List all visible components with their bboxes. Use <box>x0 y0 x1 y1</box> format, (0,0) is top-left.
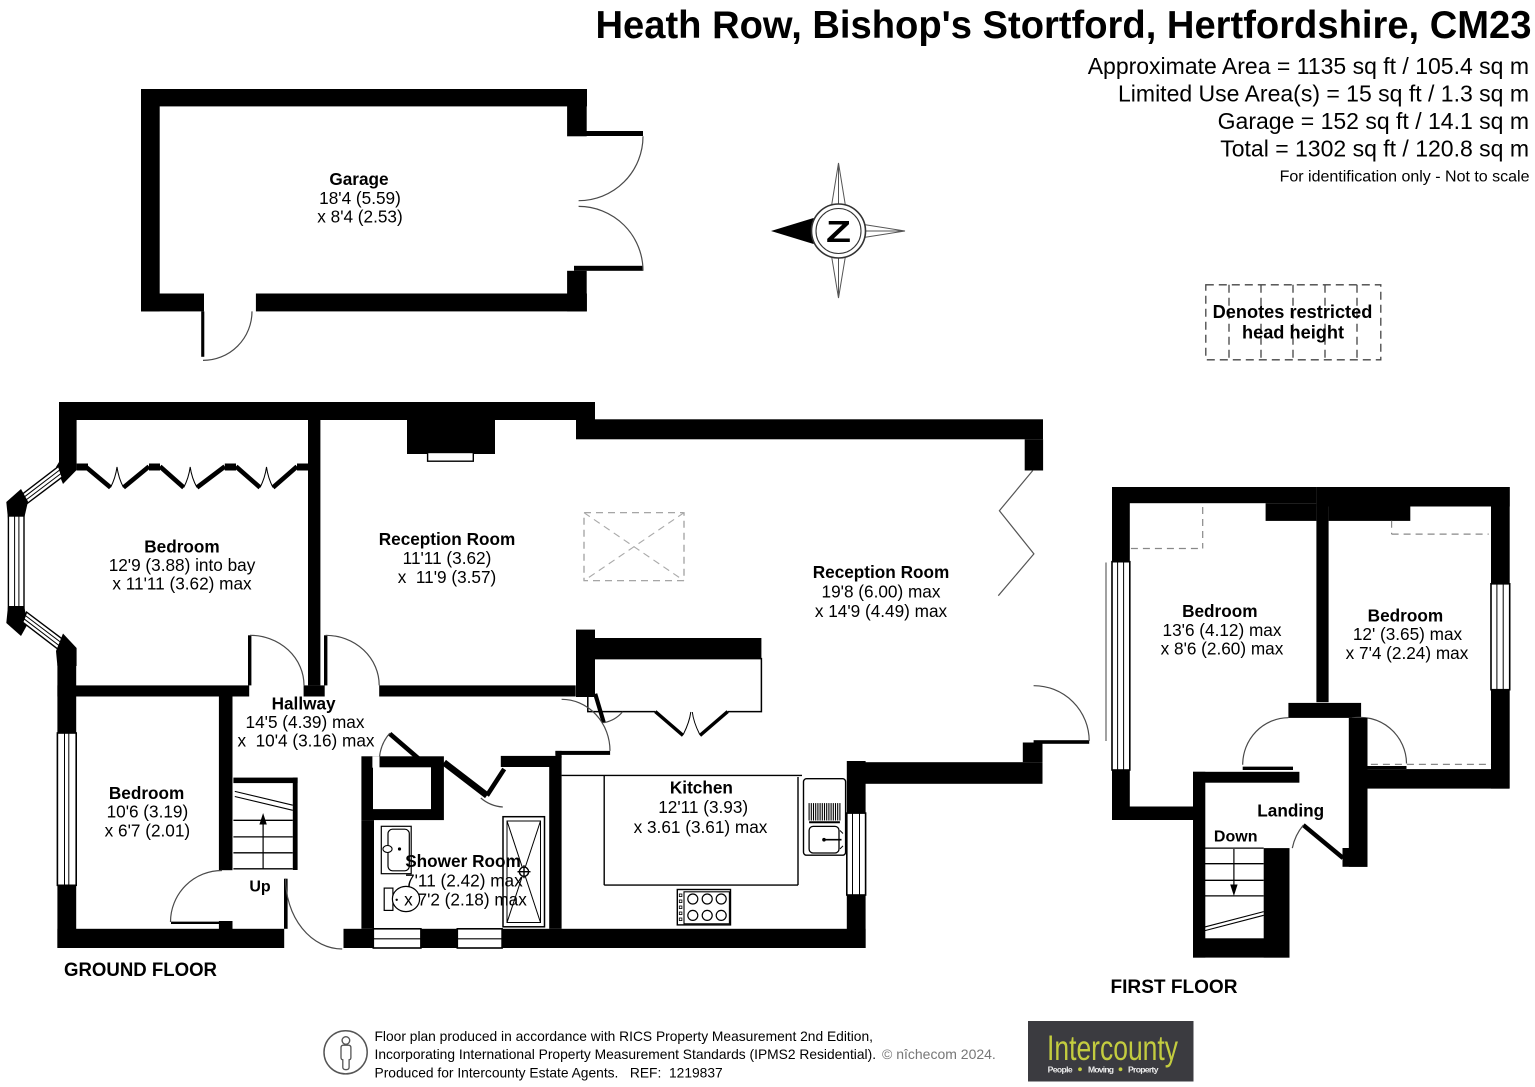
svg-text:Reception Room: Reception Room <box>379 529 516 549</box>
svg-text:x 7'2 (2.18) max: x 7'2 (2.18) max <box>404 890 527 910</box>
svg-text:12' (3.65) max: 12' (3.65) max <box>1353 624 1463 644</box>
svg-text:Limited Use Area(s) = 15 sq ft: Limited Use Area(s) = 15 sq ft / 1.3 sq … <box>1118 81 1529 107</box>
svg-text:Heath Row, Bishop's Stortford,: Heath Row, Bishop's Stortford, Hertfords… <box>596 4 1532 47</box>
svg-text:Garage: Garage <box>329 169 388 189</box>
svg-text:x 8'4 (2.53): x 8'4 (2.53) <box>317 207 402 227</box>
svg-text:x 11'11 (3.62) max: x 11'11 (3.62) max <box>112 574 252 594</box>
svg-text:Produced for Intercounty Estat: Produced for Intercounty Estate Agents. … <box>375 1065 723 1080</box>
svg-text:Bedroom: Bedroom <box>144 537 219 557</box>
svg-text:x 7'4 (2.24) max: x 7'4 (2.24) max <box>1346 643 1469 663</box>
svg-text:head height: head height <box>1242 323 1344 343</box>
svg-text:For identification only - Not: For identification only - Not to scale <box>1280 169 1530 186</box>
svg-text:GROUND FLOOR: GROUND FLOOR <box>64 960 217 981</box>
svg-text:13'6 (4.12) max: 13'6 (4.12) max <box>1163 620 1282 640</box>
svg-text:18'4 (5.59): 18'4 (5.59) <box>319 188 401 208</box>
svg-text:Intercounty: Intercounty <box>1047 1029 1178 1068</box>
svg-text:Bedroom: Bedroom <box>1368 605 1443 625</box>
svg-text:Landing: Landing <box>1257 801 1324 821</box>
svg-text:19'8 (6.00) max: 19'8 (6.00) max <box>822 582 941 602</box>
svg-text:Bedroom: Bedroom <box>109 783 184 803</box>
svg-text:Up: Up <box>249 879 271 896</box>
svg-text:x 8'6 (2.60) max: x 8'6 (2.60) max <box>1161 639 1284 659</box>
svg-text:FIRST FLOOR: FIRST FLOOR <box>1111 977 1238 998</box>
svg-text:© nîchecom 2024.: © nîchecom 2024. <box>882 1046 996 1062</box>
svg-text:x 3.61 (3.61) max: x 3.61 (3.61) max <box>634 817 768 837</box>
svg-text:Z: Z <box>826 214 851 249</box>
svg-text:Floor plan produced in accorda: Floor plan produced in accordance with R… <box>375 1029 873 1044</box>
svg-text:14'5 (4.39) max: 14'5 (4.39) max <box>246 712 365 732</box>
svg-text:11'11 (3.62): 11'11 (3.62) <box>403 548 492 568</box>
svg-text:Incorporating International Pr: Incorporating International Property Mea… <box>375 1047 877 1062</box>
svg-text:Property: Property <box>1128 1064 1159 1074</box>
svg-text:Approximate Area = 1135 sq ft: Approximate Area = 1135 sq ft / 105.4 sq… <box>1088 53 1529 79</box>
svg-text:Bedroom: Bedroom <box>1182 601 1257 621</box>
svg-text:Reception Room: Reception Room <box>813 562 950 582</box>
svg-text:x 14'9 (4.49) max: x 14'9 (4.49) max <box>815 601 948 621</box>
svg-text:12'11 (3.93): 12'11 (3.93) <box>658 797 748 817</box>
svg-text:Total = 1302 sq ft / 120.8 sq: Total = 1302 sq ft / 120.8 sq m <box>1220 136 1529 162</box>
svg-text:12'9 (3.88) into bay: 12'9 (3.88) into bay <box>109 555 256 575</box>
svg-text:Down: Down <box>1214 829 1258 846</box>
svg-text:10'6 (3.19): 10'6 (3.19) <box>107 802 189 822</box>
svg-text:7'11 (2.42) max: 7'11 (2.42) max <box>405 871 523 891</box>
svg-text:Kitchen: Kitchen <box>670 778 733 798</box>
svg-text:Moving: Moving <box>1088 1064 1114 1074</box>
svg-text:x 10'4 (3.16) max: x 10'4 (3.16) max <box>237 731 374 751</box>
svg-text:Shower Room: Shower Room <box>405 851 521 871</box>
svg-text:x 11'9 (3.57): x 11'9 (3.57) <box>398 567 497 587</box>
svg-text:Denotes restricted: Denotes restricted <box>1213 302 1373 322</box>
svg-text:People: People <box>1048 1064 1073 1074</box>
svg-text:Hallway: Hallway <box>272 694 336 714</box>
svg-text:Garage = 152 sq ft / 14.1 sq m: Garage = 152 sq ft / 14.1 sq m <box>1218 108 1529 134</box>
svg-text:x 6'7 (2.01): x 6'7 (2.01) <box>105 820 190 840</box>
